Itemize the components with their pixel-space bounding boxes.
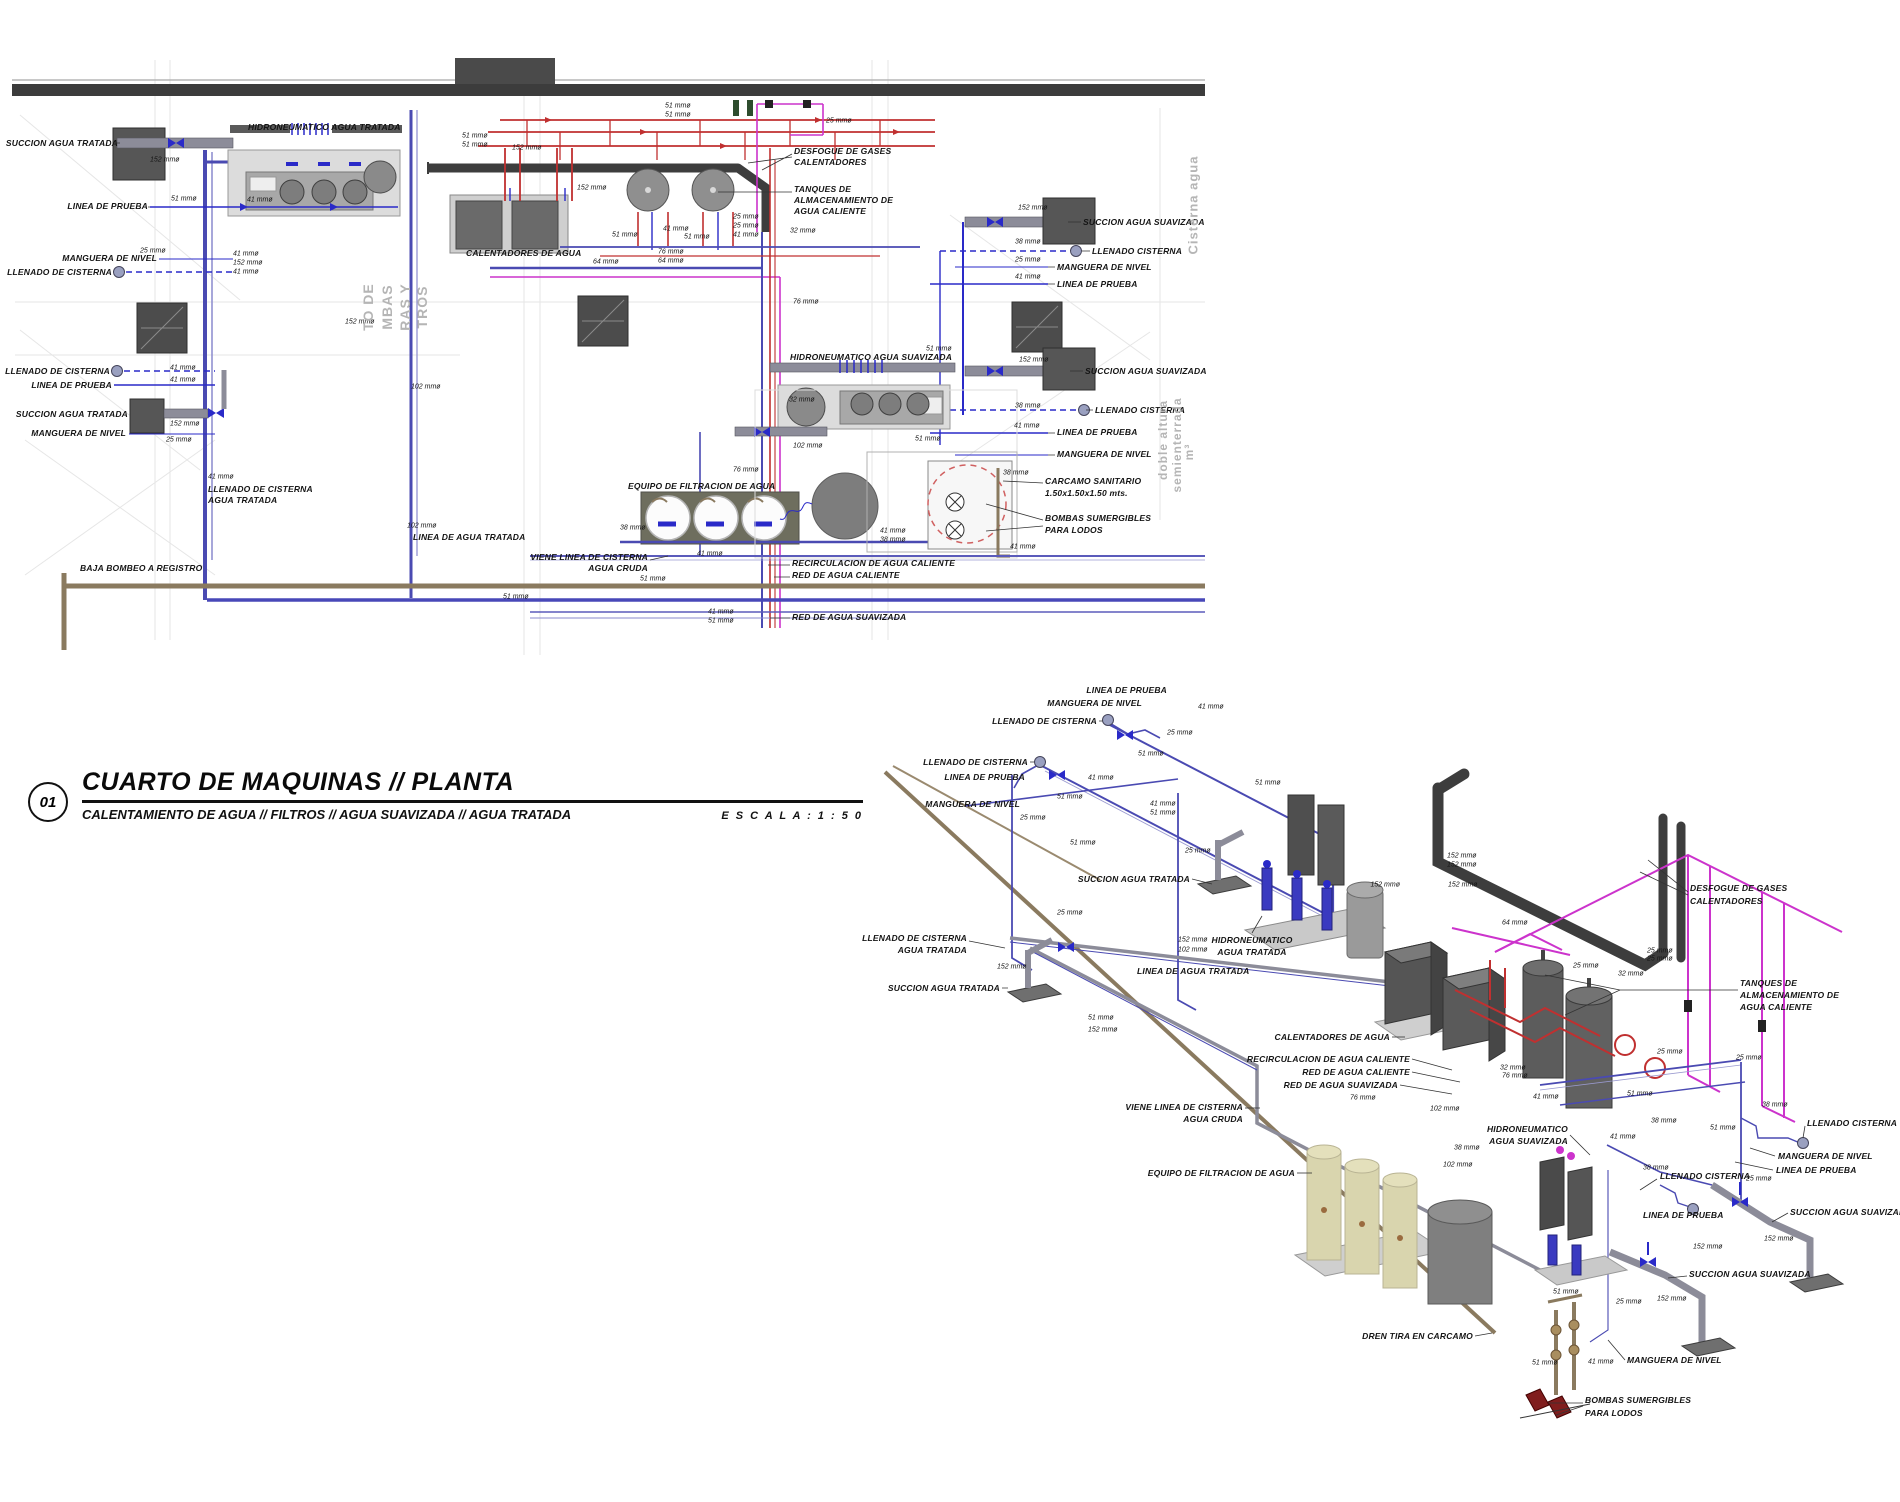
iso-annotation-label: AGUA TRATADA [898,946,967,955]
room-name-text: RAS Y [398,283,412,331]
iso-dimension-label: 25 mmø [1736,1055,1762,1062]
plan-dimension-label: 102 mmø [411,384,441,391]
room-name-text: Cisterna agua [1187,156,1200,255]
plan-dimension-label: 51 mmø [708,618,734,625]
plan-annotation-label: MANGUERA DE NIVEL [1057,263,1152,272]
iso-dimension-label: 51 mmø [1150,810,1176,817]
iso-annotation-label: ALMACENAMIENTO DE [1740,991,1839,1000]
iso-dimension-label: 25 mmø [1057,910,1083,917]
iso-dimension-label: 25 mmø [1746,1176,1772,1183]
iso-dimension-label: 38 mmø [1454,1145,1480,1152]
plan-annotation-label: LINEA DE PRUEBA [67,202,148,211]
plan-annotation-label: AGUA TRATADA [208,496,277,505]
iso-dimension-label: 152 mmø [997,964,1027,971]
plan-dimension-label: 41 mmø [697,551,723,558]
iso-dimension-label: 38 mmø [1762,1102,1788,1109]
iso-annotation-label: LINEA DE PRUEBA [1643,1211,1724,1220]
plan-dimension-label: 41 mmø [733,232,759,239]
room-name-text: TO DE [361,283,375,331]
annotation-layer: HIDRONEUMATICO AGUA TRATADASUCCION AGUA … [0,0,1900,1502]
plan-dimension-label: 25 mmø [140,248,166,255]
room-name-text: MBAS [380,284,394,329]
plan-annotation-label: SUCCION AGUA TRATADA [6,139,118,148]
plan-annotation-label: EQUIPO DE FILTRACION DE AGUA [628,482,775,491]
title-rule [82,800,863,803]
iso-dimension-label: 51 mmø [1255,780,1281,787]
iso-dimension-label: 152 mmø [1447,862,1477,869]
plan-dimension-label: 41 mmø [663,226,689,233]
plan-dimension-label: 41 mmø [208,474,234,481]
plan-dimension-label: 41 mmø [170,365,196,372]
plan-dimension-label: 152 mmø [170,421,200,428]
plan-annotation-label: LINEA DE PRUEBA [31,381,112,390]
iso-dimension-label: 102 mmø [1430,1106,1460,1113]
plan-annotation-label: CALENTADORES DE AGUA [466,249,581,258]
iso-dimension-label: 64 mmø [1502,920,1528,927]
plan-annotation-label: CALENTADORES [794,158,867,167]
plan-annotation-label: PARA LODOS [1045,526,1103,535]
iso-dimension-label: 41 mmø [1150,801,1176,808]
iso-annotation-label: PARA LODOS [1585,1409,1643,1418]
iso-annotation-label: LINEA DE PRUEBA [1776,1166,1857,1175]
iso-dimension-label: 25 mmø [1573,963,1599,970]
iso-dimension-label: 102 mmø [1178,947,1208,954]
plan-annotation-label: 1.50x1.50x1.50 mts. [1045,489,1128,498]
plan-dimension-label: 25 mmø [1015,257,1041,264]
plan-dimension-label: 152 mmø [512,145,542,152]
plan-dimension-label: 76 mmø [733,467,759,474]
iso-annotation-label: BOMBAS SUMERGIBLES [1585,1396,1691,1405]
iso-dimension-label: 51 mmø [1532,1360,1558,1367]
plan-annotation-label: BOMBAS SUMERGIBLES [1045,514,1151,523]
iso-dimension-label: 76 mmø [1350,1095,1376,1102]
plan-annotation-label: AGUA CRUDA [588,564,648,573]
plan-dimension-label: 102 mmø [793,443,823,450]
plan-dimension-label: 51 mmø [926,346,952,353]
plan-dimension-label: 41 mmø [880,528,906,535]
plan-dimension-label: 51 mmø [612,232,638,239]
iso-dimension-label: 51 mmø [1553,1289,1579,1296]
iso-annotation-label: MANGUERA DE NIVEL [1047,699,1142,708]
iso-annotation-label: LLENADO CISTERNA [1660,1172,1750,1181]
room-name-text: doble altura [1157,400,1169,480]
iso-dimension-label: 152 mmø [1088,1027,1118,1034]
plan-annotation-label: RED DE AGUA SUAVIZADA [792,613,906,622]
plan-dimension-label: 76 mmø [658,249,684,256]
plan-annotation-label: LINEA DE AGUA TRATADA [413,533,526,542]
plan-dimension-label: 41 mmø [708,609,734,616]
plan-annotation-label: LINEA DE PRUEBA [1057,428,1138,437]
iso-annotation-label: HIDRONEUMATICO [1211,936,1292,945]
plan-dimension-label: 38 mmø [1015,239,1041,246]
iso-annotation-label: SUCCION AGUA TRATADA [1078,875,1190,884]
plan-dimension-label: 152 mmø [1018,205,1048,212]
plan-annotation-label: MANGUERA DE NIVEL [1057,450,1152,459]
iso-annotation-label: AGUA SUAVIZADA [1489,1137,1568,1146]
iso-dimension-label: 25 mmø [1657,1049,1683,1056]
plan-dimension-label: 51 mmø [665,103,691,110]
plan-annotation-label: HIDRONEUMATICO AGUA TRATADA [248,123,401,132]
plan-dimension-label: 41 mmø [170,377,196,384]
iso-dimension-label: 25 mmø [1647,948,1673,955]
iso-dimension-label: 25 mmø [1167,730,1193,737]
iso-annotation-label: DESFOGUE DE GASES [1690,884,1787,893]
plan-dimension-label: 51 mmø [665,112,691,119]
plan-dimension-label: 51 mmø [684,234,710,241]
iso-dimension-label: 25 mmø [1616,1299,1642,1306]
drawing-canvas: HIDRONEUMATICO AGUA TRATADASUCCION AGUA … [0,0,1900,1502]
iso-dimension-label: 38 mmø [1643,1165,1669,1172]
title-block: 01 CUARTO DE MAQUINAS // PLANTA CALENTAM… [28,768,863,822]
plan-annotation-label: TANQUES DE [794,185,851,194]
iso-dimension-label: 76 mmø [1502,1073,1528,1080]
plan-annotation-label: LLENADO DE CISTERNA [7,268,112,277]
iso-annotation-label: RED DE AGUA SUAVIZADA [1284,1081,1398,1090]
plan-dimension-label: 41 mmø [233,269,259,276]
iso-annotation-label: TANQUES DE [1740,979,1797,988]
plan-dimension-label: 41 mmø [1015,274,1041,281]
iso-dimension-label: 32 mmø [1500,1065,1526,1072]
plan-annotation-label: RECIRCULACION DE AGUA CALIENTE [792,559,955,568]
iso-dimension-label: 152 mmø [1693,1244,1723,1251]
iso-annotation-label: MANGUERA DE NIVEL [1627,1356,1722,1365]
plan-annotation-label: LLENADO DE CISTERNA [5,367,110,376]
iso-annotation-label: MANGUERA DE NIVEL [925,800,1020,809]
iso-dimension-label: 25 mmø [1647,956,1673,963]
plan-dimension-label: 152 mmø [577,185,607,192]
iso-annotation-label: LINEA DE PRUEBA [944,773,1025,782]
iso-annotation-label: LINEA DE AGUA TRATADA [1137,967,1250,976]
iso-dimension-label: 41 mmø [1088,775,1114,782]
plan-dimension-label: 64 mmø [658,258,684,265]
iso-dimension-label: 51 mmø [1088,1015,1114,1022]
plan-dimension-label: 25 mmø [733,214,759,221]
plan-annotation-label: SUCCION AGUA TRATADA [16,410,128,419]
iso-dimension-label: 51 mmø [1627,1091,1653,1098]
iso-annotation-label: RED DE AGUA CALIENTE [1302,1068,1410,1077]
plan-dimension-label: 25 mmø [733,223,759,230]
iso-dimension-label: 25 mmø [1185,848,1211,855]
iso-dimension-label: 51 mmø [1057,794,1083,801]
plan-dimension-label: 32 mmø [789,397,815,404]
iso-dimension-label: 25 mmø [1020,815,1046,822]
plan-dimension-label: 41 mmø [1010,544,1036,551]
iso-dimension-label: 152 mmø [1178,937,1208,944]
plan-dimension-label: 51 mmø [640,576,666,583]
plan-annotation-label: MANGUERA DE NIVEL [31,429,126,438]
iso-dimension-label: 51 mmø [1138,751,1164,758]
iso-annotation-label: LLENADO CISTERNA [1807,1119,1897,1128]
plan-dimension-label: 51 mmø [462,133,488,140]
iso-annotation-label: SUCCION AGUA SUAVIZADA [1790,1208,1900,1217]
plan-dimension-label: 102 mmø [407,523,437,530]
plan-annotation-label: DESFOGUE DE GASES [794,147,891,156]
iso-dimension-label: 152 mmø [1448,882,1478,889]
iso-dimension-label: 152 mmø [1370,882,1400,889]
iso-dimension-label: 41 mmø [1610,1134,1636,1141]
iso-annotation-label: LLENADO DE CISTERNA [923,758,1028,767]
iso-annotation-label: MANGUERA DE NIVEL [1778,1152,1873,1161]
plan-annotation-label: LLENADO CISTERNA [1092,247,1182,256]
plan-annotation-label: BAJA BOMBEO A REGISTRO [80,564,202,573]
view-subtitle: CALENTAMIENTO DE AGUA // FILTROS // AGUA… [82,807,571,822]
iso-annotation-label: LLENADO DE CISTERNA [992,717,1097,726]
iso-dimension-label: 41 mmø [1533,1094,1559,1101]
iso-annotation-label: SUCCION AGUA TRATADA [888,984,1000,993]
plan-annotation-label: HIDRONEUMATICO AGUA SUAVIZADA [790,353,952,362]
plan-annotation-label: LINEA DE PRUEBA [1057,280,1138,289]
plan-dimension-label: 51 mmø [503,594,529,601]
iso-dimension-label: 38 mmø [1651,1118,1677,1125]
plan-dimension-label: 76 mmø [793,299,819,306]
iso-dimension-label: 51 mmø [1710,1125,1736,1132]
iso-annotation-label: LINEA DE PRUEBA [1086,686,1167,695]
plan-dimension-label: 152 mmø [1019,357,1049,364]
plan-dimension-label: 41 mmø [247,197,273,204]
iso-dimension-label: 41 mmø [1588,1359,1614,1366]
iso-annotation-label: LLENADO DE CISTERNA [862,934,967,943]
plan-annotation-label: AGUA CALIENTE [794,207,866,216]
iso-annotation-label: SUCCION AGUA SUAVIZADA [1689,1270,1811,1279]
plan-annotation-label: ALMACENAMIENTO DE [794,196,893,205]
plan-annotation-label: RED DE AGUA CALIENTE [792,571,900,580]
iso-dimension-label: 32 mmø [1618,971,1644,978]
plan-annotation-label: CARCAMO SANITARIO [1045,477,1141,486]
plan-dimension-label: 64 mmø [593,259,619,266]
plan-annotation-label: VIENE LINEA DE CISTERNA [530,553,648,562]
plan-dimension-label: 51 mmø [462,142,488,149]
iso-annotation-label: CALENTADORES DE AGUA [1275,1033,1390,1042]
plan-dimension-label: 152 mmø [150,157,180,164]
iso-annotation-label: EQUIPO DE FILTRACION DE AGUA [1148,1169,1295,1178]
plan-dimension-label: 51 mmø [171,196,197,203]
plan-dimension-label: 38 mmø [1003,470,1029,477]
iso-dimension-label: 152 mmø [1764,1236,1794,1243]
iso-dimension-label: 152 mmø [1447,853,1477,860]
scale-label: E S C A L A : 1 : 5 0 [721,810,863,822]
iso-annotation-label: RECIRCULACION DE AGUA CALIENTE [1247,1055,1410,1064]
iso-annotation-label: AGUA TRATADA [1217,948,1286,957]
plan-dimension-label: 38 mmø [620,525,646,532]
view-number-badge: 01 [28,782,68,822]
plan-dimension-label: 25 mmø [826,118,852,125]
plan-dimension-label: 51 mmø [915,436,941,443]
plan-dimension-label: 38 mmø [880,537,906,544]
plan-dimension-label: 32 mmø [790,228,816,235]
iso-dimension-label: 51 mmø [1070,840,1096,847]
plan-dimension-label: 41 mmø [1014,423,1040,430]
view-title: CUARTO DE MAQUINAS // PLANTA [82,768,863,797]
plan-dimension-label: 152 mmø [233,260,263,267]
plan-annotation-label: LLENADO DE CISTERNA [208,485,313,494]
iso-annotation-label: CALENTADORES [1690,897,1763,906]
plan-dimension-label: 38 mmø [1015,403,1041,410]
iso-annotation-label: AGUA CALIENTE [1740,1003,1812,1012]
iso-dimension-label: 102 mmø [1443,1162,1473,1169]
iso-annotation-label: AGUA CRUDA [1183,1115,1243,1124]
iso-annotation-label: VIENE LINEA DE CISTERNA [1125,1103,1243,1112]
room-name-text: m³ [1183,444,1195,461]
plan-annotation-label: SUCCION AGUA SUAVIZADA [1085,367,1207,376]
plan-dimension-label: 41 mmø [233,251,259,258]
room-name-text: TROS [415,286,429,329]
iso-dimension-label: 41 mmø [1198,704,1224,711]
iso-annotation-label: DREN TIRA EN CARCAMO [1362,1332,1473,1341]
plan-annotation-label: MANGUERA DE NIVEL [62,254,157,263]
plan-dimension-label: 25 mmø [166,437,192,444]
iso-annotation-label: HIDRONEUMATICO [1487,1125,1568,1134]
iso-dimension-label: 152 mmø [1657,1296,1687,1303]
